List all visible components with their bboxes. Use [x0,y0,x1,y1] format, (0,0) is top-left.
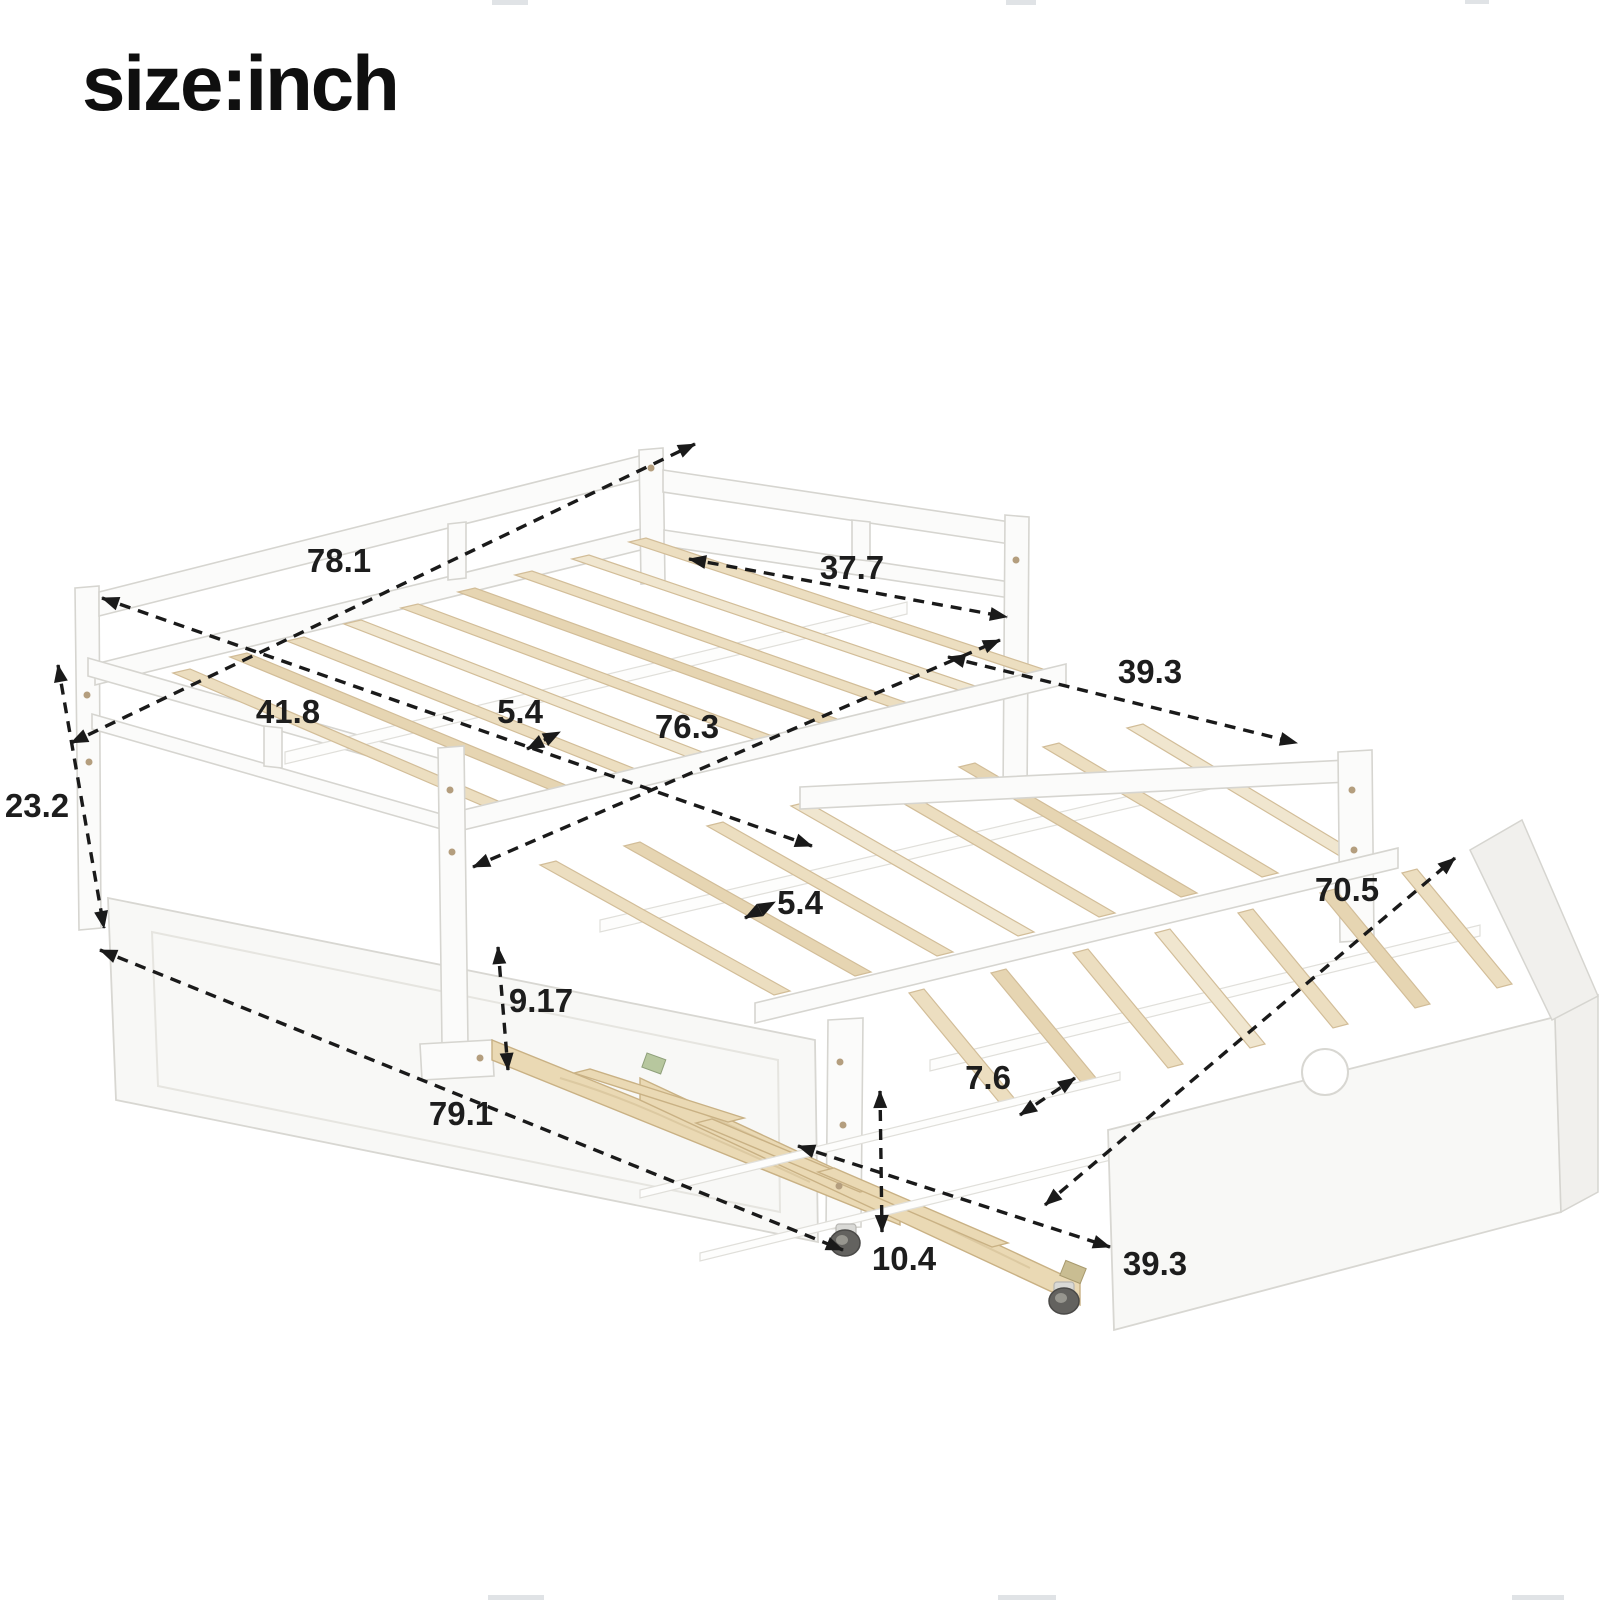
dimension-label-trundle-width: 39.3 [1123,1245,1187,1282]
dimension-label-daybed-side-width: 41.8 [256,693,320,730]
dimension-label-trundle-height: 10.4 [872,1240,937,1277]
caster-icon [1049,1282,1079,1314]
trundle-end-board [1555,995,1598,1212]
dimension-label-slat-gap-lower: 5.4 [777,884,824,921]
handle-notch [1302,1049,1348,1095]
wood-slat [540,861,790,995]
wood-slat [401,604,783,744]
dimension-label-under-clearance-height: 9.17 [509,982,573,1019]
left-rear-post [75,586,101,930]
extension-front-rail [755,848,1398,1023]
dimension-label-daybed-top-length: 78.1 [307,542,371,579]
wood-slat [287,637,648,778]
dimension-line-trundle-height [880,1091,882,1232]
dimension-label-slat-length: 76.3 [655,708,719,745]
dimension-label-daybed-inner-width: 37.7 [820,549,884,586]
front-left-foot [420,1040,494,1080]
left-side-mid-post [264,726,282,768]
bed-diagram: 78.137.741.839.35.476.323.25.470.59.1779… [0,0,1600,1600]
dimension-label-trundle-slat-gap: 7.6 [965,1059,1011,1096]
trundle-end-board-top [1470,820,1598,1020]
dimension-label-trundle-slat-length: 70.5 [1315,871,1379,908]
head-top-rail [663,470,1010,544]
dimension-label-daybed-height: 23.2 [5,787,69,824]
diagram-page: size:inch [0,0,1600,1600]
dimension-label-slat-gap-upper: 5.4 [497,693,544,730]
dimension-label-extension-width: 39.3 [1118,653,1182,690]
back-mid-post [448,522,466,580]
dimension-label-total-length: 79.1 [429,1095,493,1132]
